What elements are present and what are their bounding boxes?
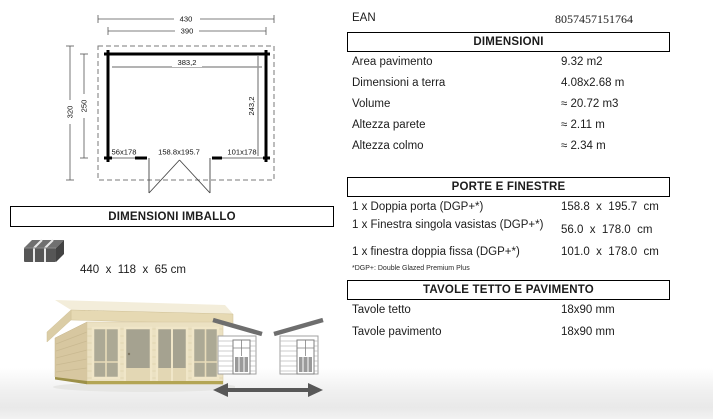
table-row: Dimensioni a terra 4.08x2.68 m [347,77,670,98]
spec-panel: EAN 8057457151764 DIMENSIONI Area pavime… [347,0,670,348]
row-label: Altezza colmo [352,140,561,153]
tavole-rows: Tavole tetto 18x90 mm Tavole pavimento 1… [347,304,670,348]
plan-opening-left-label: 56x178 [112,148,137,157]
svg-text:390: 390 [181,27,194,36]
mini-cabin-right [274,320,323,374]
row-label: Area pavimento [352,56,561,69]
ean-row: EAN 8057457151764 [347,0,670,32]
table-row: Tavole tetto 18x90 mm [347,304,670,326]
row-value: ≈ 20.72 m3 [561,98,618,111]
plan-inner-lines [112,56,262,156]
table-row: 1 x finestra doppia fissa (DGP+*) 101.0 … [347,246,670,264]
plan-dim-wall-depth: 250 [79,54,89,158]
row-label: Tavole tetto [352,304,561,317]
plan-opening-center-label: 158.8x195.7 [158,148,200,157]
row-label: Tavole pavimento [352,326,561,339]
double-arrow-icon [213,383,323,397]
reversible-roof-direction-icon [212,310,324,404]
dgp-footnote: *DGP+: Double Glazed Premium Plus [347,265,670,272]
dimensioni-rows: Area pavimento 9.32 m2 Dimensioni a terr… [347,56,670,161]
table-row: Volume ≈ 20.72 m3 [347,98,670,119]
section-header-dimensioni: DIMENSIONI [347,32,670,52]
table-row: Altezza colmo ≈ 2.34 m [347,140,670,161]
row-label: 1 x finestra doppia fissa (DGP+*) [352,246,561,259]
svg-text:250: 250 [80,100,89,113]
plan-door-swing [149,158,210,193]
row-value: 18x90 mm [561,326,615,339]
porte-finestre-title: PORTE E FINESTRE [452,181,566,193]
plan-dim-roof-width: 430 [98,13,274,24]
mini-cabin-left [213,320,262,374]
wooden-cabin-photo [45,286,235,394]
ean-label: EAN [352,12,555,27]
table-row: Area pavimento 9.32 m2 [347,56,670,77]
package-size: 440 x 118 x 65 cm [80,263,186,278]
row-value: 56.0 x 178.0 cm [561,219,652,237]
row-label: Volume [352,98,561,111]
plan-opening-right-label: 101x178 [227,148,256,157]
table-row: Altezza parete ≈ 2.11 m [347,119,670,140]
package-bundle-icon [20,236,68,268]
table-row: 1 x Doppia porta (DGP+*) 158.8 x 195.7 c… [347,201,670,219]
row-value: 4.08x2.68 m [561,77,624,90]
row-value: ≈ 2.34 m [561,140,606,153]
row-label: Altezza parete [352,119,561,132]
row-value: ≈ 2.11 m [561,119,605,132]
ean-value: 8057457151764 [555,12,633,27]
section-header-porte-finestre: PORTE E FINESTRE [347,177,670,197]
plan-dim-wall-width: 390 [108,25,266,36]
table-row: Tavole pavimento 18x90 mm [347,326,670,348]
plan-inner-depth-label: 243,2 [247,96,256,115]
tavole-title: TAVOLE TETTO E PAVIMENTO [423,284,594,296]
row-value: 18x90 mm [561,304,615,317]
svg-text:430: 430 [180,15,193,24]
spec-sheet-page: 430 390 320 250 [0,0,713,419]
imballo-title: DIMENSIONI IMBALLO [108,211,236,223]
section-header-tavole: TAVOLE TETTO E PAVIMENTO [347,280,670,300]
row-label: Dimensioni a terra [352,77,561,90]
row-value: 158.8 x 195.7 cm [561,201,659,214]
row-value: 101.0 x 178.0 cm [561,246,659,259]
table-row: 1 x Finestra singola vasistas (DGP+*) 56… [347,219,670,246]
row-value: 9.32 m2 [561,56,603,69]
dimensioni-title: DIMENSIONI [473,36,543,48]
svg-text:320: 320 [66,106,75,119]
plan-inner-width-label: 383,2 [177,58,196,67]
plan-dim-roof-depth: 320 [65,46,75,180]
imballo-header: DIMENSIONI IMBALLO [10,206,334,227]
floor-plan-drawing: 430 390 320 250 [36,4,318,196]
row-label: 1 x Finestra singola vasistas (DGP+*) [352,219,561,232]
porte-finestre-rows: 1 x Doppia porta (DGP+*) 158.8 x 195.7 c… [347,201,670,264]
row-label: 1 x Doppia porta (DGP+*) [352,201,561,214]
